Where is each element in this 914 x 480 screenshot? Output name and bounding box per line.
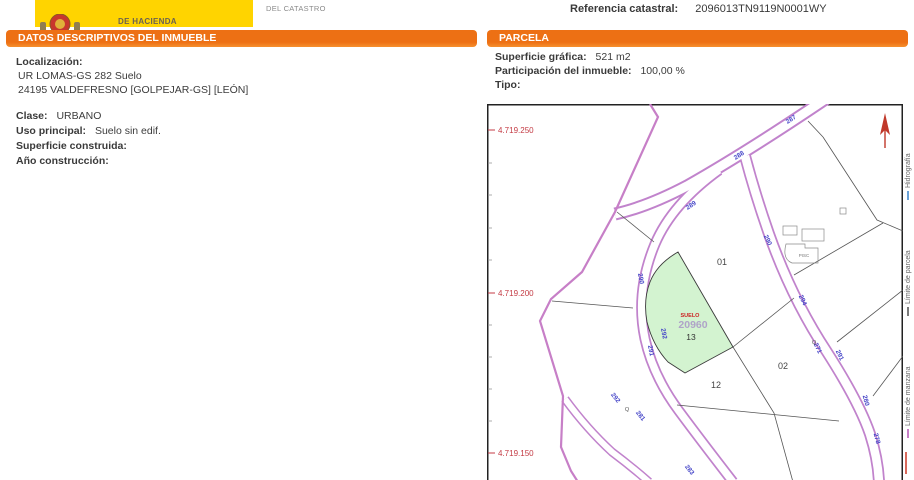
superficie-grafica-value: 521 m2 xyxy=(596,51,631,63)
cadastral-map: PISC 4.719.250 4.719.200 4.719.150 01 02… xyxy=(487,104,903,480)
reference-label: Referencia catastral: xyxy=(570,3,678,15)
coordinate-labels: 4.719.250 4.719.200 4.719.150 xyxy=(498,126,534,458)
legend-item-hidrografia: Hidrografía xyxy=(905,153,912,200)
coord-label-1: 4.719.250 xyxy=(498,126,534,135)
q-symbol-2: Q xyxy=(812,340,817,346)
tipo-label: Tipo: xyxy=(495,79,520,91)
parcel-number-label: 20960 xyxy=(678,319,707,331)
minor-ticks xyxy=(488,163,492,421)
limite-manzana-line-icon xyxy=(907,429,909,438)
hidrografia-line-icon xyxy=(907,191,909,200)
localizacion-label: Localización: xyxy=(16,56,83,68)
reference-value: 2096013TN9119N0001WY xyxy=(695,3,826,15)
section-title-datos-descriptivos: DATOS DESCRIPTIVOS DEL INMUEBLE xyxy=(6,30,477,47)
q-symbol-1: Q xyxy=(625,407,630,413)
road-label: 292 xyxy=(609,392,621,405)
participacion-label: Participación del inmueble: xyxy=(495,65,632,77)
parcel-lines xyxy=(552,121,903,480)
limite-parcela-line-icon xyxy=(907,307,909,316)
parcel-12: 12 xyxy=(711,380,721,390)
building-label: PISC xyxy=(799,253,810,258)
address-line2: 24195 VALDEFRESNO [GOLPEJAR-GS] [LEÓN] xyxy=(18,84,248,96)
uso-row: Uso principal: Suelo sin edif. xyxy=(16,125,161,137)
coord-label-3: 4.719.150 xyxy=(498,449,534,458)
tipo-row: Tipo: xyxy=(495,79,526,91)
parcel-numbers: 01 02 12 xyxy=(711,257,788,390)
anio-label: Año construcción: xyxy=(16,155,109,167)
road-cores xyxy=(565,104,879,480)
road-label: 290 xyxy=(636,273,645,285)
road-label: 283 xyxy=(683,464,695,477)
legend-label: Hidrografía xyxy=(905,153,912,188)
uso-value: Suelo sin edif. xyxy=(95,125,161,137)
parcel-02: 02 xyxy=(778,361,788,371)
legend-label: Límite de manzana xyxy=(905,366,912,426)
participacion-value: 100,00 % xyxy=(640,65,684,77)
road-label: 281 xyxy=(634,410,646,423)
buildings xyxy=(783,208,846,263)
superficie-grafica-row: Superficie gráfica: 521 m2 xyxy=(495,51,631,63)
subparcel-label: 13 xyxy=(686,332,696,342)
coord-label-2: 4.719.200 xyxy=(498,289,534,298)
ministry-text: DE HACIENDA xyxy=(118,17,177,26)
superficie-grafica-label: Superficie gráfica: xyxy=(495,51,587,63)
legend-red-mark xyxy=(905,452,907,474)
north-arrow-icon xyxy=(880,113,890,148)
coordinate-ticks xyxy=(488,130,495,453)
section-title-parcela: PARCELA xyxy=(487,30,908,47)
superficie-label: Superficie construida: xyxy=(16,140,127,152)
cadastral-document-page: DE HACIENDA DEL CATASTRO Referencia cata… xyxy=(0,0,914,480)
anio-row: Año construcción: xyxy=(16,155,115,167)
clase-label: Clase: xyxy=(16,110,48,122)
legend-item-limite-manzana: Límite de manzana xyxy=(905,366,912,438)
legend-label: Límite de parcela xyxy=(905,250,912,304)
clase-row: Clase: URBANO xyxy=(16,110,101,122)
participacion-row: Participación del inmueble: 100,00 % xyxy=(495,65,685,77)
catastro-direction-text: DEL CATASTRO xyxy=(266,4,326,13)
cadastral-reference: Referencia catastral: 2096013TN9119N0001… xyxy=(570,3,827,15)
legend-item-limite-parcela: Límite de parcela xyxy=(905,250,912,316)
localizacion-row: Localización: xyxy=(16,56,89,68)
uso-label: Uso principal: xyxy=(16,125,86,137)
superficie-row: Superficie construida: xyxy=(16,140,133,152)
clase-value: URBANO xyxy=(56,110,101,122)
parcel-01: 01 xyxy=(717,257,727,267)
address-line1: UR LOMAS-GS 282 Suelo xyxy=(18,70,142,82)
